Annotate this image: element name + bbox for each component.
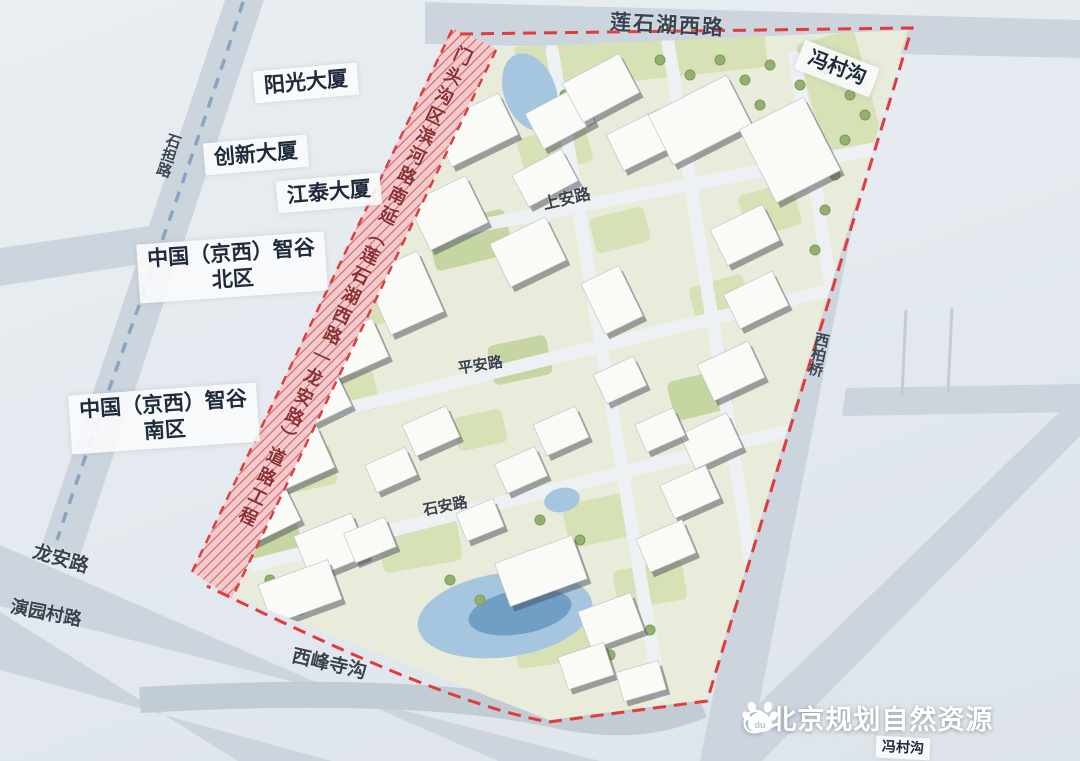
road-west-branch	[0, 226, 154, 286]
tree-marker	[655, 55, 665, 65]
tree-marker	[475, 595, 485, 605]
watermark: du @北京规划自然资源	[742, 698, 993, 737]
bridge-lines	[902, 308, 952, 396]
tree-marker	[820, 205, 830, 215]
tree-marker	[740, 75, 750, 85]
tree-marker	[840, 135, 850, 145]
tree-marker	[795, 80, 805, 90]
tree-marker	[445, 575, 455, 585]
tree-marker	[810, 245, 820, 255]
planning-map: 阳光大厦 创新大厦 江泰大厦 中国（京西）智谷 北区 中国（京西）智谷 南区 冯…	[0, 0, 1080, 761]
tree-marker	[755, 100, 765, 110]
tree-marker	[535, 515, 545, 525]
tree-marker	[715, 55, 725, 65]
tree-marker	[765, 60, 775, 70]
baidu-paw-icon: du	[742, 698, 778, 734]
map-canvas	[0, 0, 1080, 761]
label-fengcungou-south: 冯村沟	[875, 736, 930, 760]
watermark-handle: @北京规划自然资源	[742, 698, 993, 737]
road-east-branch	[842, 384, 1080, 416]
tree-marker	[685, 70, 695, 80]
tree-marker	[860, 110, 870, 120]
paw-du-text: du	[755, 720, 766, 730]
